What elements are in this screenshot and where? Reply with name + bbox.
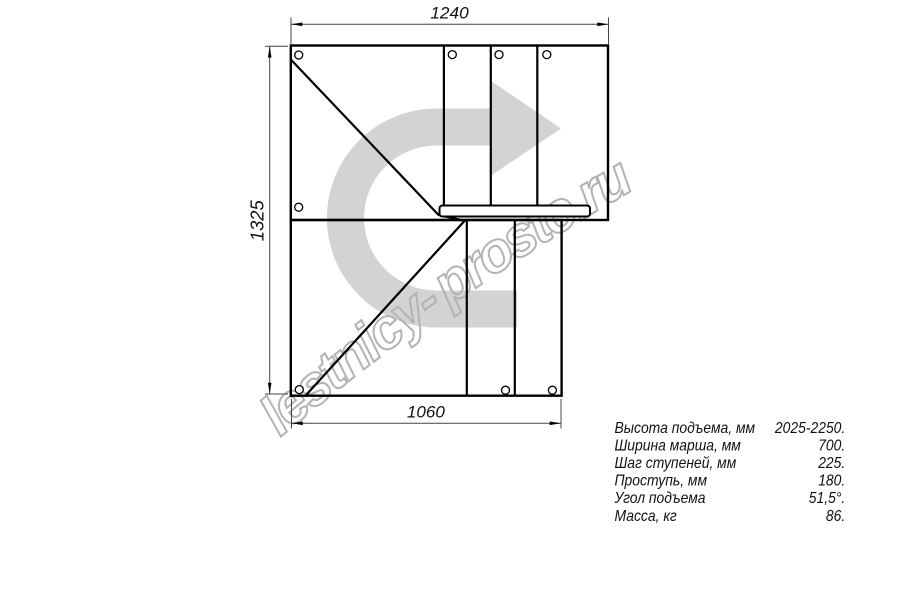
svg-text:700.: 700. bbox=[818, 437, 845, 455]
svg-text:Высота подъема, мм: Высота подъема, мм bbox=[614, 419, 755, 437]
svg-text:Ширина марша, мм: Ширина марша, мм bbox=[614, 437, 740, 455]
svg-text:2025-2250.: 2025-2250. bbox=[774, 419, 845, 437]
svg-text:Угол подъема: Угол подъема bbox=[614, 489, 706, 507]
svg-text:180.: 180. bbox=[818, 472, 845, 490]
svg-text:1240: 1240 bbox=[430, 4, 469, 23]
svg-text:86.: 86. bbox=[826, 507, 845, 525]
svg-text:Шаг ступеней, мм: Шаг ступеней, мм bbox=[614, 454, 736, 472]
svg-text:1060: 1060 bbox=[407, 403, 446, 422]
svg-text:51,5°.: 51,5°. bbox=[809, 489, 846, 507]
svg-text:Проступь, мм: Проступь, мм bbox=[614, 472, 707, 490]
svg-text:225.: 225. bbox=[817, 454, 845, 472]
svg-text:1325: 1325 bbox=[248, 199, 268, 241]
svg-text:Масса, кг: Масса, кг bbox=[614, 507, 677, 525]
